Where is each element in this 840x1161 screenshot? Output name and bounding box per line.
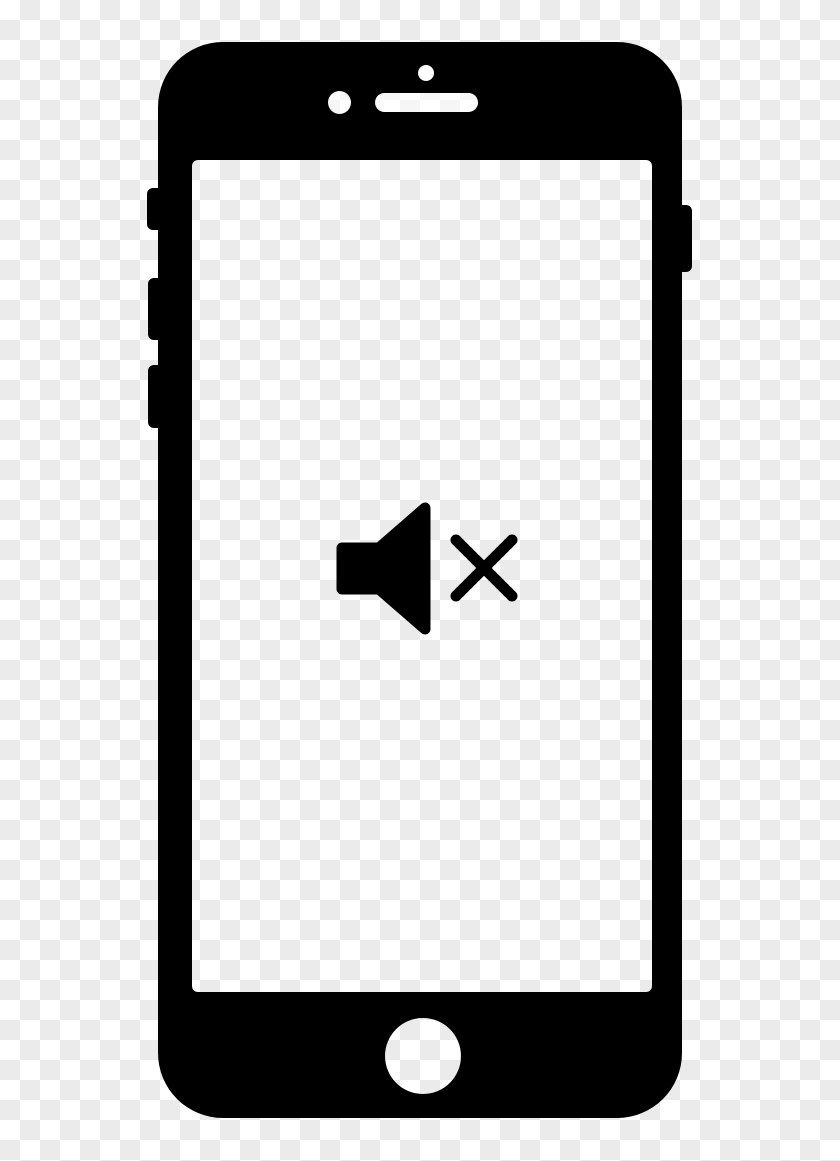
front-camera-dot — [328, 91, 351, 114]
phone-body — [158, 42, 682, 1118]
speaker-icon — [342, 508, 425, 629]
home-button-circle — [385, 1018, 461, 1094]
proximity-sensor-dot — [418, 65, 434, 81]
muted-speaker-icon — [320, 480, 540, 650]
earpiece-speaker-slot — [375, 93, 478, 112]
checkerboard-background — [0, 0, 840, 1161]
cross-icon — [456, 540, 512, 596]
